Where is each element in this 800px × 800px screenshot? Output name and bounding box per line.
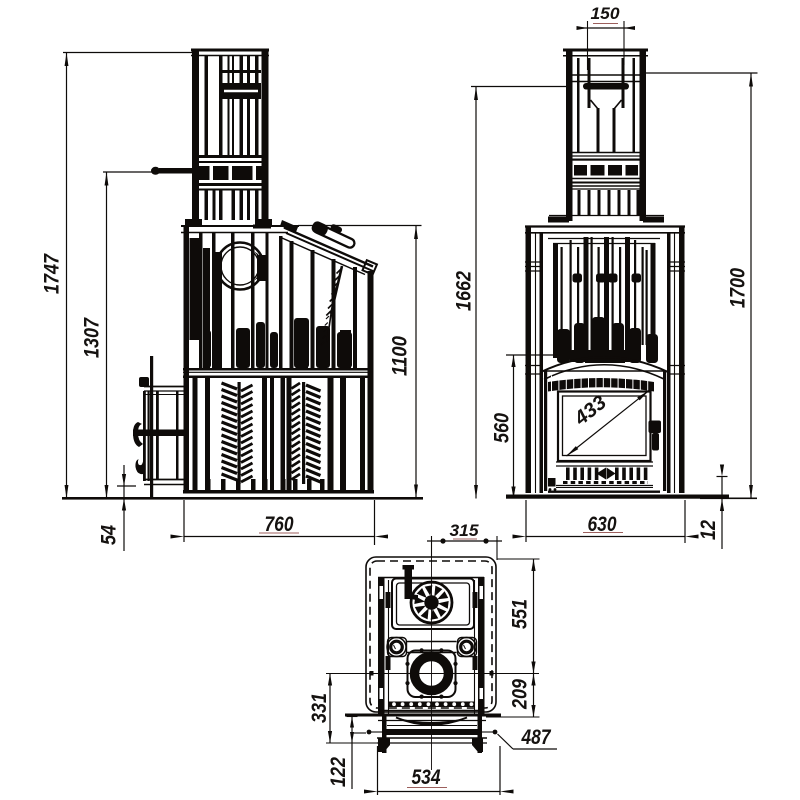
svg-text:331: 331: [308, 693, 331, 723]
svg-text:54: 54: [98, 525, 121, 545]
svg-text:1700: 1700: [727, 268, 750, 308]
svg-text:209: 209: [509, 679, 532, 710]
svg-text:551: 551: [509, 599, 532, 629]
svg-text:122: 122: [327, 757, 350, 787]
svg-text:1662: 1662: [453, 271, 476, 311]
svg-text:12: 12: [697, 520, 720, 540]
svg-text:487: 487: [521, 726, 552, 749]
svg-text:1100: 1100: [389, 336, 412, 376]
svg-text:560: 560: [491, 413, 514, 443]
svg-text:534: 534: [412, 766, 441, 789]
svg-text:315: 315: [450, 521, 480, 540]
svg-text:1307: 1307: [81, 317, 104, 358]
svg-text:150: 150: [591, 4, 621, 23]
svg-text:1747: 1747: [41, 253, 64, 294]
